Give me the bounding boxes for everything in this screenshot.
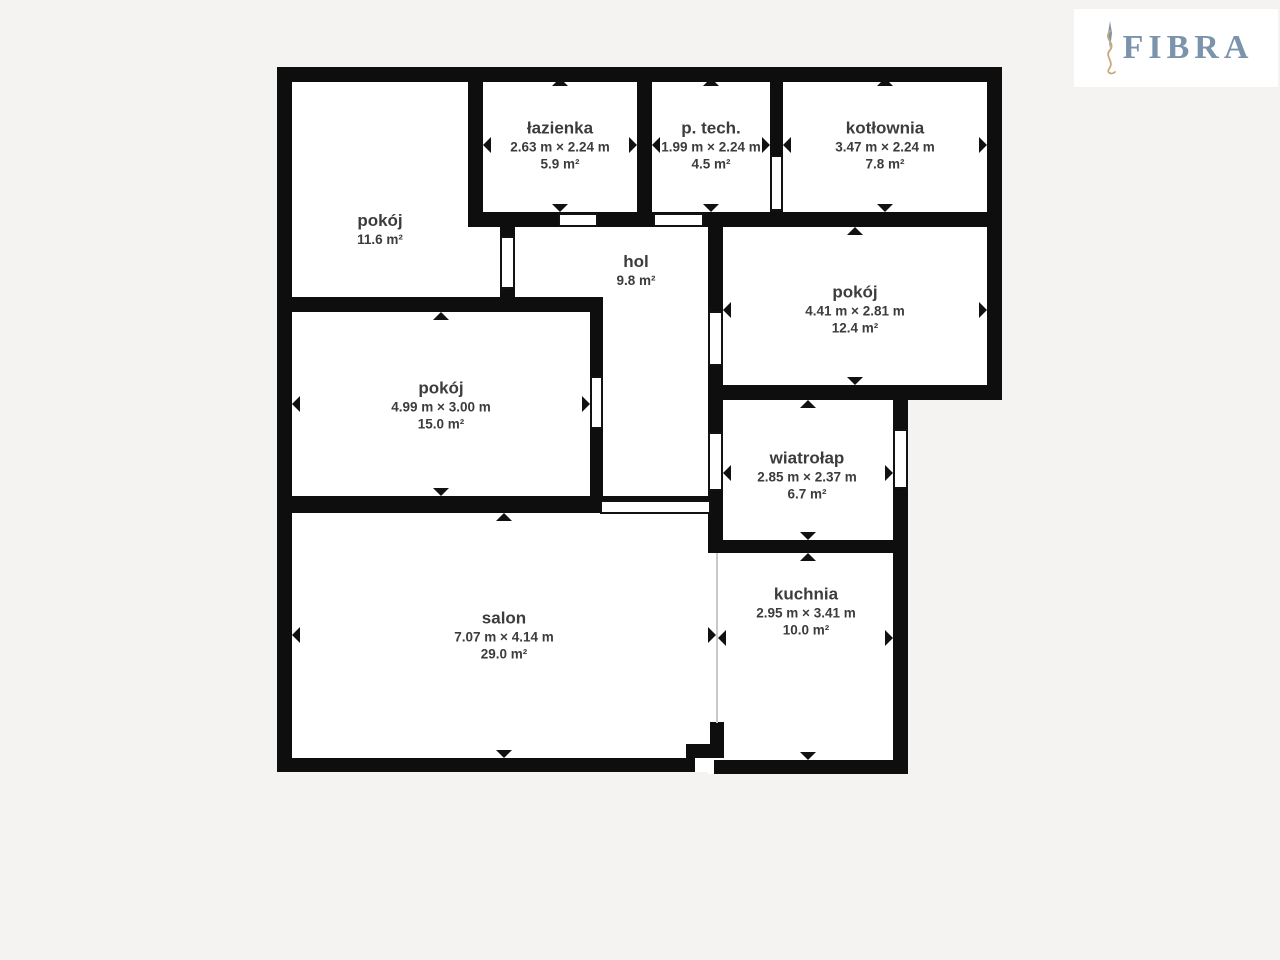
door-opening (558, 213, 598, 227)
passage-opening (600, 500, 711, 514)
dimension-arrow-icon (979, 137, 987, 153)
dimension-arrow-icon (652, 137, 660, 153)
logo-text: FIBRA (1123, 31, 1254, 65)
dimension-arrow-icon (723, 465, 731, 481)
wall (710, 722, 724, 758)
wall (708, 385, 1002, 400)
dimension-arrow-icon (885, 465, 893, 481)
wall (987, 67, 1002, 397)
dimension-arrow-icon (552, 78, 568, 86)
door-opening (770, 155, 783, 211)
dimension-arrow-icon (718, 630, 726, 646)
door-opening (708, 311, 723, 366)
logo: FIBRA (1074, 9, 1278, 87)
dimension-arrow-icon (496, 750, 512, 758)
flourish-icon (1099, 19, 1121, 77)
dimension-arrow-icon (292, 627, 300, 643)
dimension-arrow-icon (703, 78, 719, 86)
floor-plan-page: pokój 11.6 m² łazienka 2.63 m × 2.24 m 5… (0, 0, 1280, 960)
dimension-arrow-icon (292, 396, 300, 412)
door-opening (708, 432, 723, 491)
wall (637, 67, 652, 225)
dimension-arrow-icon (979, 302, 987, 318)
dimension-arrow-icon (847, 227, 863, 235)
dimension-arrow-icon (800, 752, 816, 760)
dimension-arrow-icon (877, 204, 893, 212)
dimension-arrow-icon (783, 137, 791, 153)
dimension-arrow-icon (762, 137, 770, 153)
wall (468, 67, 483, 225)
wall (708, 540, 908, 553)
dimension-arrow-icon (800, 400, 816, 408)
dimension-arrow-icon (877, 78, 893, 86)
door-opening (653, 213, 704, 227)
dimension-arrow-icon (629, 137, 637, 153)
wall (468, 212, 1002, 227)
wall (714, 760, 900, 774)
dimension-arrow-icon (496, 513, 512, 521)
dimension-arrow-icon (582, 396, 590, 412)
door-opening (500, 236, 515, 289)
wall (277, 758, 695, 772)
dimension-arrow-icon (552, 204, 568, 212)
dimension-arrow-icon (433, 488, 449, 496)
dimension-arrow-icon (703, 204, 719, 212)
dimension-arrow-icon (885, 630, 893, 646)
dimension-arrow-icon (847, 377, 863, 385)
dimension-arrow-icon (708, 627, 716, 643)
dimension-arrow-icon (800, 532, 816, 540)
floor-area (708, 397, 908, 774)
dimension-arrow-icon (723, 302, 731, 318)
wall (277, 297, 603, 312)
wall (277, 67, 292, 772)
dimension-arrow-icon (483, 137, 491, 153)
dimension-arrow-icon (433, 312, 449, 320)
dimension-arrow-icon (800, 553, 816, 561)
floor-area (277, 67, 723, 772)
entrance-door-opening (893, 429, 908, 489)
door-opening (590, 376, 603, 429)
